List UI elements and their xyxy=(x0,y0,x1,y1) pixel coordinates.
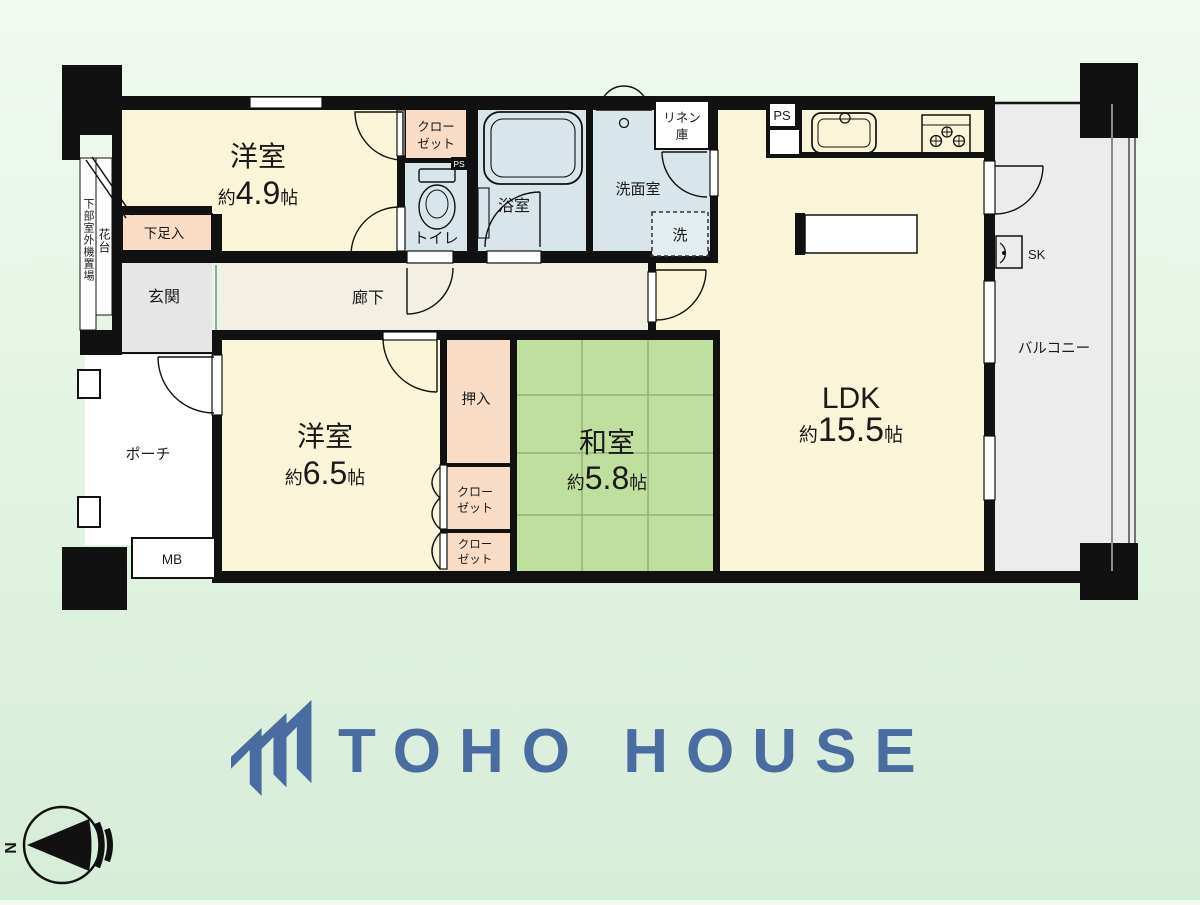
pillar-top-left xyxy=(62,65,122,135)
pillar-bottom-right xyxy=(1080,543,1138,600)
porch-post-top xyxy=(78,370,100,398)
opening-closet1 xyxy=(397,110,405,156)
wall-corridor-end-b xyxy=(648,322,656,340)
wall-wash-ldk-a xyxy=(710,96,718,150)
label-closet-bottom-2: ゼット xyxy=(458,553,493,566)
label-corridor: 廊下 xyxy=(352,289,384,307)
wall-balcony-b xyxy=(984,214,995,281)
wall-entry-right-a xyxy=(212,214,222,263)
label-toilet: トイレ xyxy=(413,230,458,247)
opening-balcony-door xyxy=(984,161,995,214)
wall-bath-wash xyxy=(586,100,593,251)
label-laundry: 洗 xyxy=(672,227,687,244)
compass-band-2 xyxy=(107,829,110,861)
opening-ldk-door xyxy=(648,272,656,322)
opening-washroom-door xyxy=(710,150,718,196)
label-oshiire: 押入 xyxy=(462,391,491,408)
label-closet-mid-1: クロー xyxy=(457,485,493,499)
opening-closet-bottom xyxy=(440,533,447,569)
label-western1-name: 洋室 xyxy=(230,141,286,172)
wall-bottom xyxy=(212,571,1082,583)
island-counter-cap xyxy=(795,213,805,255)
room-western2 xyxy=(222,335,440,571)
label-sk: SK xyxy=(1028,247,1046,262)
logo-mark xyxy=(231,700,311,796)
wall-balcony-c xyxy=(984,363,995,436)
label-linen-1: リネン xyxy=(663,111,701,125)
opening-toilet-door xyxy=(407,251,453,263)
label-shoe-cabinet: 下足入 xyxy=(144,226,185,241)
room-balcony xyxy=(995,102,1135,575)
label-balcony: バルコニー xyxy=(1018,341,1090,357)
floorplan-canvas: 洋室 約4.9帖 洋室 約6.5帖 和室 約5.8帖 LDK 約15.5帖 玄関… xyxy=(0,0,1200,900)
toho-house-logo: TOHO HOUSE xyxy=(231,700,934,796)
logo-text: TOHO HOUSE xyxy=(338,717,934,786)
compass-needle xyxy=(27,819,92,871)
label-linen-2: 庫 xyxy=(676,128,689,142)
wall-entry-right-b xyxy=(212,330,222,355)
wall-rooms-top xyxy=(212,330,720,340)
label-ps-small: PS xyxy=(453,159,465,169)
wall-left-entry xyxy=(112,133,122,355)
wall-oshiire-washitsu xyxy=(510,335,517,571)
wall-closets-div xyxy=(440,529,517,533)
wall-w1-right-b xyxy=(397,156,405,207)
window-ldk-2 xyxy=(984,436,995,500)
label-japanese-name: 和室 xyxy=(579,427,635,458)
wall-oshiire-div xyxy=(440,463,517,467)
wall-balcony-a xyxy=(984,104,995,161)
wall-toilet-bath xyxy=(467,96,478,251)
window-top xyxy=(250,97,322,108)
island-counter xyxy=(805,215,917,253)
label-closet-top-1: クロー xyxy=(417,120,455,134)
wall-washitsu-ldk xyxy=(713,330,720,571)
wall-left-stub xyxy=(62,135,80,160)
compass-band-1 xyxy=(97,823,102,867)
logo-stripe-1 xyxy=(231,728,262,796)
label-closet-bottom-1: クロー xyxy=(458,538,493,551)
label-closet-mid-2: ゼット xyxy=(457,501,493,515)
label-bath: 浴室 xyxy=(498,197,530,215)
wall-wash-ldk-b xyxy=(710,196,718,263)
opening-western1-door xyxy=(397,207,405,251)
wall-w2-closets-a xyxy=(440,330,447,465)
wall-w1-right-a xyxy=(397,104,405,110)
label-outdoor-unit: 下部室外機置場 xyxy=(82,198,95,282)
window-ldk-1 xyxy=(984,281,995,363)
label-ps: PS xyxy=(773,108,791,123)
pillar-bottom-left xyxy=(62,547,127,610)
label-meter-box: MB xyxy=(162,552,182,567)
opening-western2-door xyxy=(383,332,437,340)
wall-corridor-end-a xyxy=(648,263,656,272)
label-flower-stand: 花台 xyxy=(97,227,111,254)
opening-bath-door xyxy=(487,251,541,263)
opening-entrance-door xyxy=(212,355,222,415)
label-porch: ポーチ xyxy=(125,446,170,463)
compass-north-label: N xyxy=(3,842,20,854)
label-entrance: 玄関 xyxy=(148,288,180,306)
label-closet-top-2: ゼット xyxy=(417,137,455,151)
room-corridor xyxy=(222,263,648,330)
label-washroom: 洗面室 xyxy=(615,181,660,198)
porch-post-bottom xyxy=(78,497,100,527)
pillar-top-right xyxy=(1080,63,1138,138)
label-western2-name: 洋室 xyxy=(297,421,353,452)
ps-box-lower xyxy=(770,130,799,154)
opening-closet-mid xyxy=(440,465,447,529)
wall-balcony-d xyxy=(984,500,995,571)
compass: N xyxy=(3,807,110,883)
